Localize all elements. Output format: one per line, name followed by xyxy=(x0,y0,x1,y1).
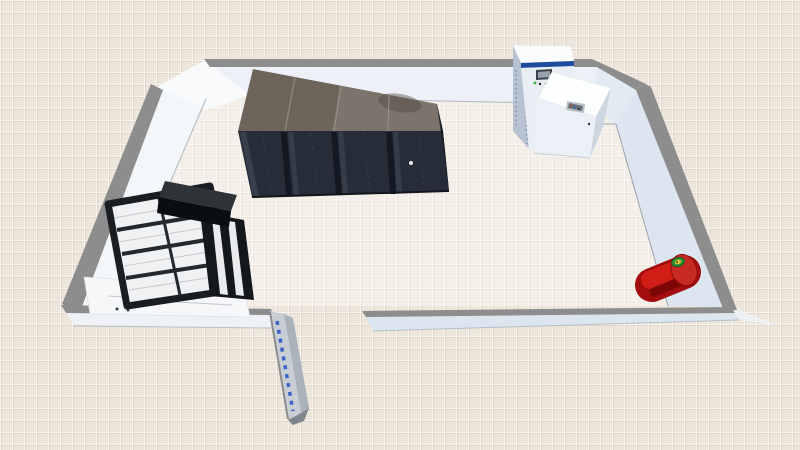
crac1-display-screen xyxy=(538,71,550,78)
crac1-led-green xyxy=(534,82,537,85)
ups-base-foot-1 xyxy=(116,308,119,311)
rack-handle-dot xyxy=(409,161,413,165)
se-corner-wedge xyxy=(731,307,777,325)
crac1-top[interactable] xyxy=(513,45,574,63)
3d-room-planner-viewport[interactable] xyxy=(0,0,800,450)
crac2-led-dark xyxy=(578,108,580,110)
scene-3d-view[interactable] xyxy=(0,0,800,450)
fire-tank-valve-dot xyxy=(676,261,678,263)
crac2-led-red xyxy=(570,105,572,107)
crac1-led-dark-1 xyxy=(539,83,541,85)
crac2-led-blue xyxy=(574,107,576,109)
crac2-handle-dot xyxy=(588,123,590,125)
